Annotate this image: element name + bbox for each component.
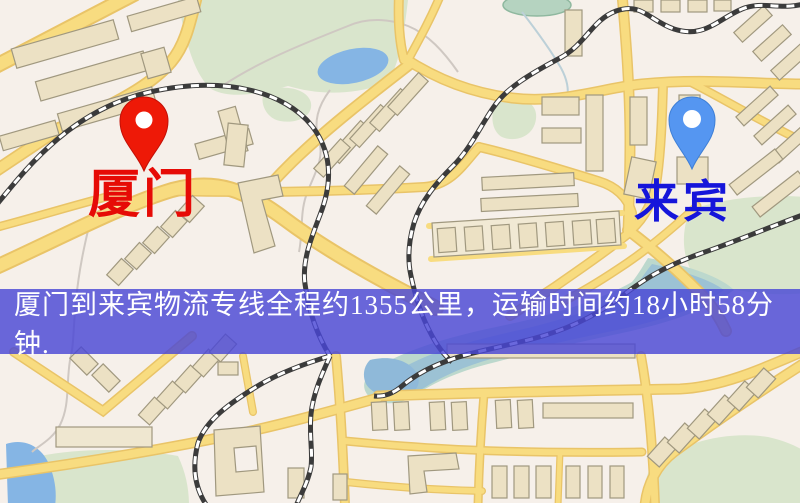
route-info-text: 厦门到来宾物流专线全程约1355公里，运输时间约18小时58分钟. bbox=[0, 283, 800, 361]
destination-city-label: 来宾 bbox=[634, 180, 732, 225]
map-image: 厦门 来宾 厦门到来宾物流专线全程约1355公里，运输时间约18小时58分钟. bbox=[0, 0, 800, 503]
map-canvas bbox=[0, 0, 800, 503]
origin-city-label: 厦门 bbox=[88, 170, 198, 222]
route-info-banner: 厦门到来宾物流专线全程约1355公里，运输时间约18小时58分钟. bbox=[0, 289, 800, 354]
